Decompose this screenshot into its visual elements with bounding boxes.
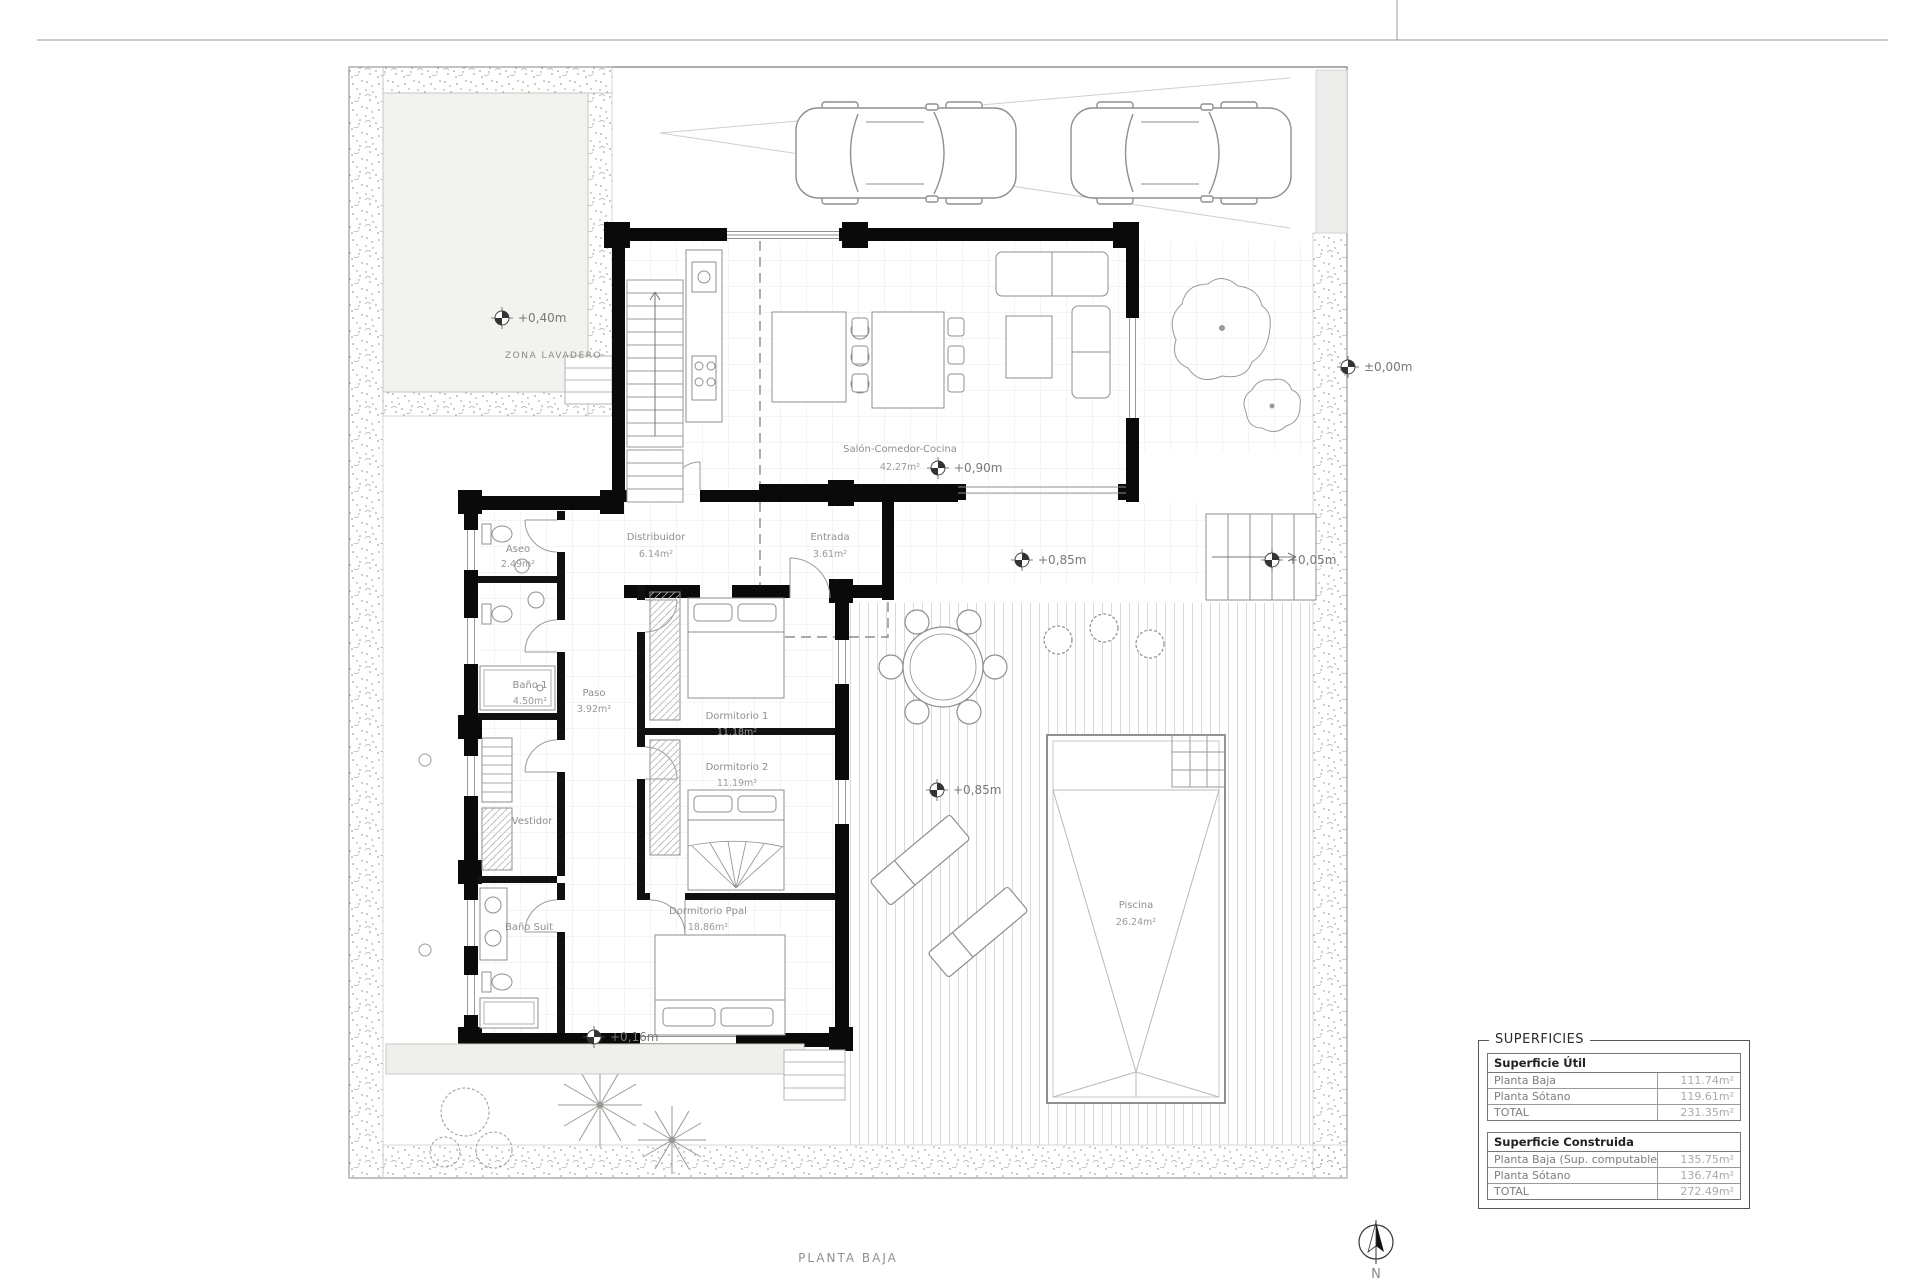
room-label-dorm2: Dormitorio 2 — [706, 762, 769, 773]
level-calle: ±0,00m — [1364, 360, 1412, 374]
level-jardin: +0,16m — [610, 1030, 658, 1044]
row-value: 136.74m² — [1657, 1168, 1740, 1183]
room-label-aseo: Aseo — [506, 544, 530, 555]
bed-dorm2 — [688, 790, 784, 890]
surfaces-panel-title: SUPERFICIES — [1489, 1032, 1590, 1047]
table-row: Planta Sótano 136.74m² — [1488, 1168, 1740, 1184]
wardrobe-dorm2 — [650, 740, 680, 855]
row-label: TOTAL — [1488, 1105, 1657, 1120]
table-row: TOTAL 272.49m² — [1488, 1184, 1740, 1199]
row-label: Planta Sótano — [1488, 1089, 1657, 1104]
bed-ppal — [655, 935, 785, 1035]
sheet-frame — [37, 0, 1888, 40]
car-1 — [796, 102, 1016, 204]
room-label-bano-suit: Baño Suit — [505, 922, 553, 933]
room-area-dorm2: 11.19m² — [717, 778, 757, 789]
level-escalera: +0,05m — [1288, 553, 1336, 567]
car-2 — [1071, 102, 1291, 204]
room-area-piscina: 26.24m² — [1116, 917, 1156, 928]
row-label: Planta Sótano — [1488, 1168, 1657, 1183]
level-porche: +0,85m — [1038, 553, 1086, 567]
superficie-construida-header: Superficie Construida — [1488, 1133, 1740, 1152]
room-label-dorm1: Dormitorio 1 — [706, 711, 769, 722]
superficie-util-header: Superficie Útil — [1488, 1054, 1740, 1073]
coffee-table — [1006, 316, 1052, 378]
room-area-salon: 42.27m² — [880, 462, 920, 473]
row-value: 231.35m² — [1657, 1105, 1740, 1120]
room-area-dorm1: 11.18m² — [717, 727, 757, 738]
room-area-paso: 3.92m² — [577, 704, 611, 715]
stairs-main — [627, 280, 683, 502]
room-label-piscina: Piscina — [1119, 900, 1154, 911]
room-label-paso: Paso — [582, 688, 605, 699]
table-row: TOTAL 231.35m² — [1488, 1105, 1740, 1120]
room-label-salon: Salón-Comedor-Cocina — [843, 443, 957, 455]
row-label: Planta Baja (Sup. computable) — [1488, 1152, 1657, 1167]
room-label-bano1: Baño 1 — [513, 680, 548, 691]
room-area-bano1: 4.50m² — [513, 696, 547, 707]
pool: Piscina 26.24m² — [1047, 735, 1225, 1103]
table-superficie-util: Superficie Útil Planta Baja 111.74m² Pla… — [1487, 1053, 1741, 1121]
north-arrow: N — [1359, 1220, 1393, 1280]
table-superficie-construida: Superficie Construida Planta Baja (Sup. … — [1487, 1132, 1741, 1200]
plan-title: PLANTA BAJA — [798, 1251, 898, 1265]
table-row: Planta Baja (Sup. computable) 135.75m² — [1488, 1152, 1740, 1168]
level-terraza: +0,85m — [953, 783, 1001, 797]
floor-plan-sheet: ZONA LAVADERO Piscina 26.24m² — [0, 0, 1920, 1280]
table-row: Planta Sótano 119.61m² — [1488, 1089, 1740, 1105]
surfaces-panel: SUPERFICIES Superficie Útil Planta Baja … — [1478, 1040, 1750, 1209]
room-label-dorm-ppal: Dormitorio Ppal — [669, 906, 747, 917]
row-value: 135.75m² — [1657, 1152, 1740, 1167]
room-label-vestidor: Vestidor — [512, 816, 554, 827]
level-lavadero: +0,40m — [518, 311, 566, 325]
level-salon: +0,90m — [954, 461, 1002, 475]
wardrobe-dorm1 — [650, 592, 680, 720]
room-area-dorm-ppal: 18.86m² — [688, 922, 728, 933]
row-value: 119.61m² — [1657, 1089, 1740, 1104]
row-value: 111.74m² — [1657, 1073, 1740, 1088]
north-label: N — [1371, 1267, 1381, 1280]
room-area-entrada: 3.61m² — [813, 549, 847, 560]
row-label: TOTAL — [1488, 1184, 1657, 1199]
zona-lavadero-label: ZONA LAVADERO — [505, 351, 602, 361]
table-row: Planta Baja 111.74m² — [1488, 1073, 1740, 1089]
room-label-distribuidor: Distribuidor — [627, 532, 686, 543]
row-value: 272.49m² — [1657, 1184, 1740, 1199]
room-label-entrada: Entrada — [810, 532, 849, 543]
bed-dorm1 — [688, 598, 784, 698]
row-label: Planta Baja — [1488, 1073, 1657, 1088]
room-area-aseo: 2.49m² — [501, 559, 535, 570]
kitchen-island — [772, 312, 846, 402]
room-area-distribuidor: 6.14m² — [639, 549, 673, 560]
